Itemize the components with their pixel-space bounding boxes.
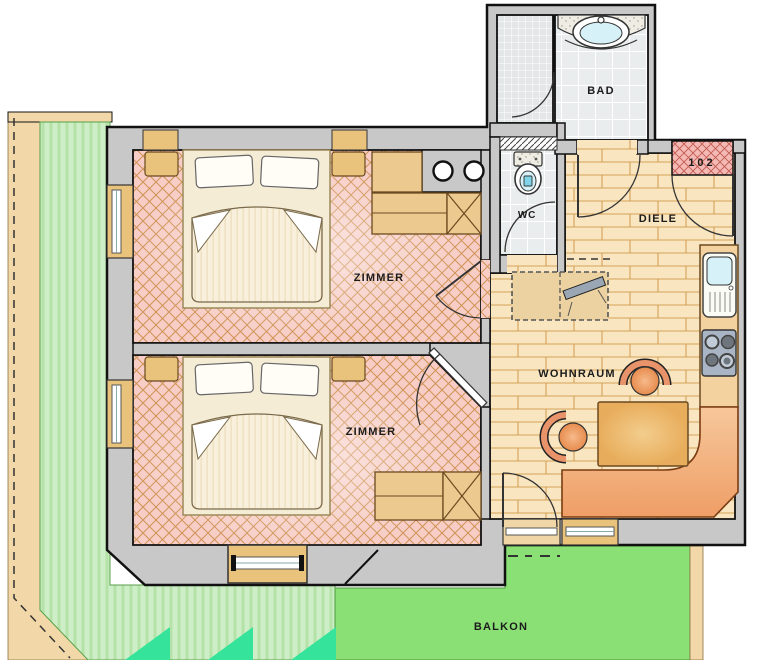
label-zimmer-bottom: ZIMMER	[346, 426, 397, 438]
wardrobe	[375, 472, 481, 520]
kitchenette	[700, 245, 738, 407]
nightstand	[332, 357, 365, 381]
wc-shelf	[500, 137, 557, 150]
window-zimmer-bottom-left	[107, 380, 133, 448]
room-shower	[497, 15, 553, 123]
double-bed	[183, 357, 330, 515]
duct-circle	[434, 162, 453, 181]
dining-table	[598, 402, 688, 466]
window-wohnraum-bottom	[562, 519, 618, 545]
window-bay-bottom	[228, 545, 307, 583]
terrace-edge-right	[690, 546, 703, 660]
door-threshold-bad	[577, 140, 637, 154]
door-threshold-zimmer-top	[481, 260, 490, 318]
label-diele: DIELE	[639, 213, 677, 225]
nightstand	[332, 152, 365, 176]
pillow	[195, 362, 253, 395]
label-wohnraum: WOHNRAUM	[538, 368, 615, 380]
pillow	[260, 156, 318, 189]
label-unit-number: 102	[688, 157, 715, 169]
stove	[702, 330, 736, 376]
double-bed	[183, 150, 330, 308]
terrace-edge-top	[8, 112, 112, 122]
kitchen-sink	[703, 253, 736, 317]
label-wc: WC	[518, 210, 536, 221]
duct-circle	[465, 162, 484, 181]
pillow	[260, 363, 318, 396]
nightstand	[145, 357, 178, 381]
nightstand	[145, 152, 178, 176]
window-zimmer-top-left	[107, 185, 133, 258]
label-balkon: BALKON	[474, 621, 528, 633]
floor-plan: BAD WC DIELE 102 WOHNRAUM ZIMMER ZIMMER …	[0, 0, 762, 660]
wall-niche	[332, 130, 367, 150]
label-bad: BAD	[587, 85, 614, 97]
wall-niche	[143, 130, 178, 150]
label-zimmer-top: ZIMMER	[354, 272, 405, 284]
door-threshold-wc	[507, 255, 557, 273]
tv-cabinet-dashed	[512, 272, 608, 320]
faucet	[598, 17, 604, 23]
pillow	[195, 155, 253, 188]
